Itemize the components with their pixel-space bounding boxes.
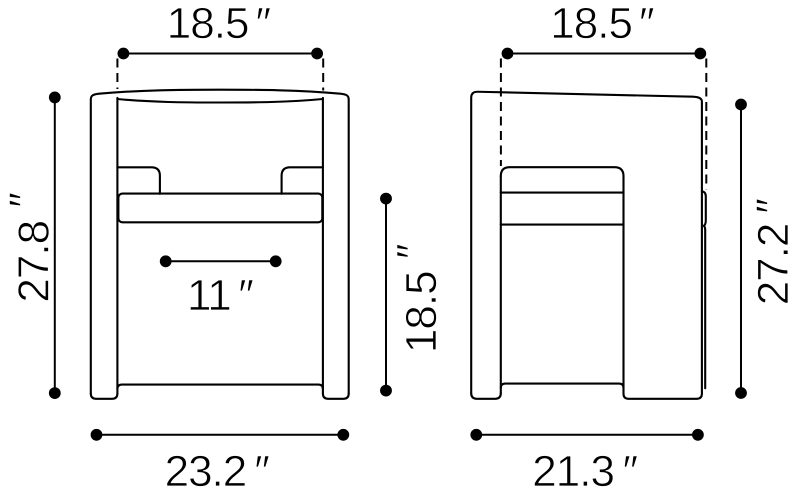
svg-text:18.5″: 18.5″ <box>167 0 271 48</box>
svg-text:18.5″: 18.5″ <box>550 0 654 48</box>
svg-text:23.2″: 23.2″ <box>165 447 270 495</box>
svg-text:11″: 11″ <box>187 271 253 320</box>
svg-text:21.3″: 21.3″ <box>532 447 637 495</box>
